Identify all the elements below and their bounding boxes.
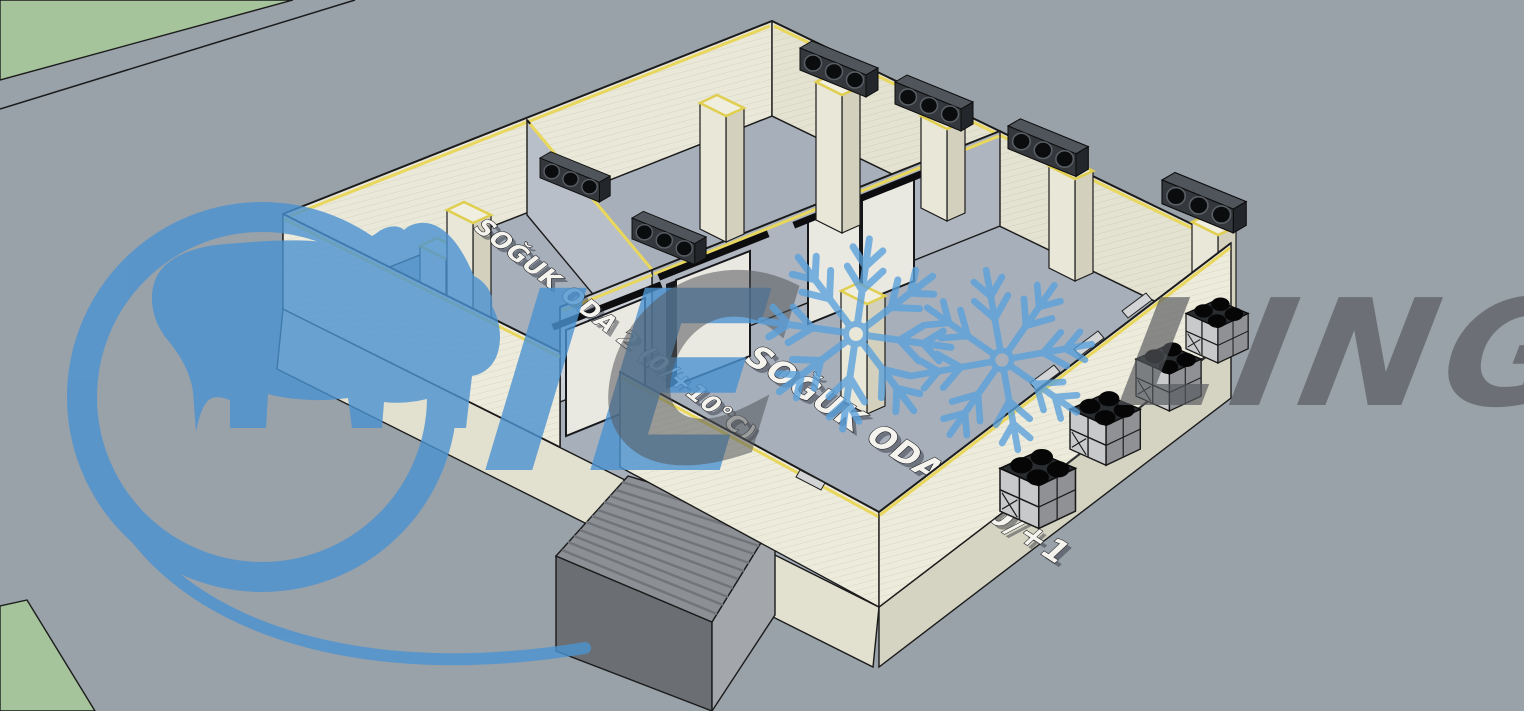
wall-pillar (1049, 158, 1093, 281)
brand-letter-c: C (594, 233, 799, 512)
brand-letters-ling: LING (1109, 268, 1524, 441)
wall-pillar (700, 95, 744, 242)
cold-storage-3d-render: SOĞUK ODA 2 (0/+10°C) SOĞUK ODA 2 (0/+10… (0, 0, 1524, 711)
model-viewport: SOĞUK ODA 2 (0/+10°C) SOĞUK ODA 2 (0/+10… (0, 0, 1524, 711)
wall-pillar (816, 74, 860, 233)
